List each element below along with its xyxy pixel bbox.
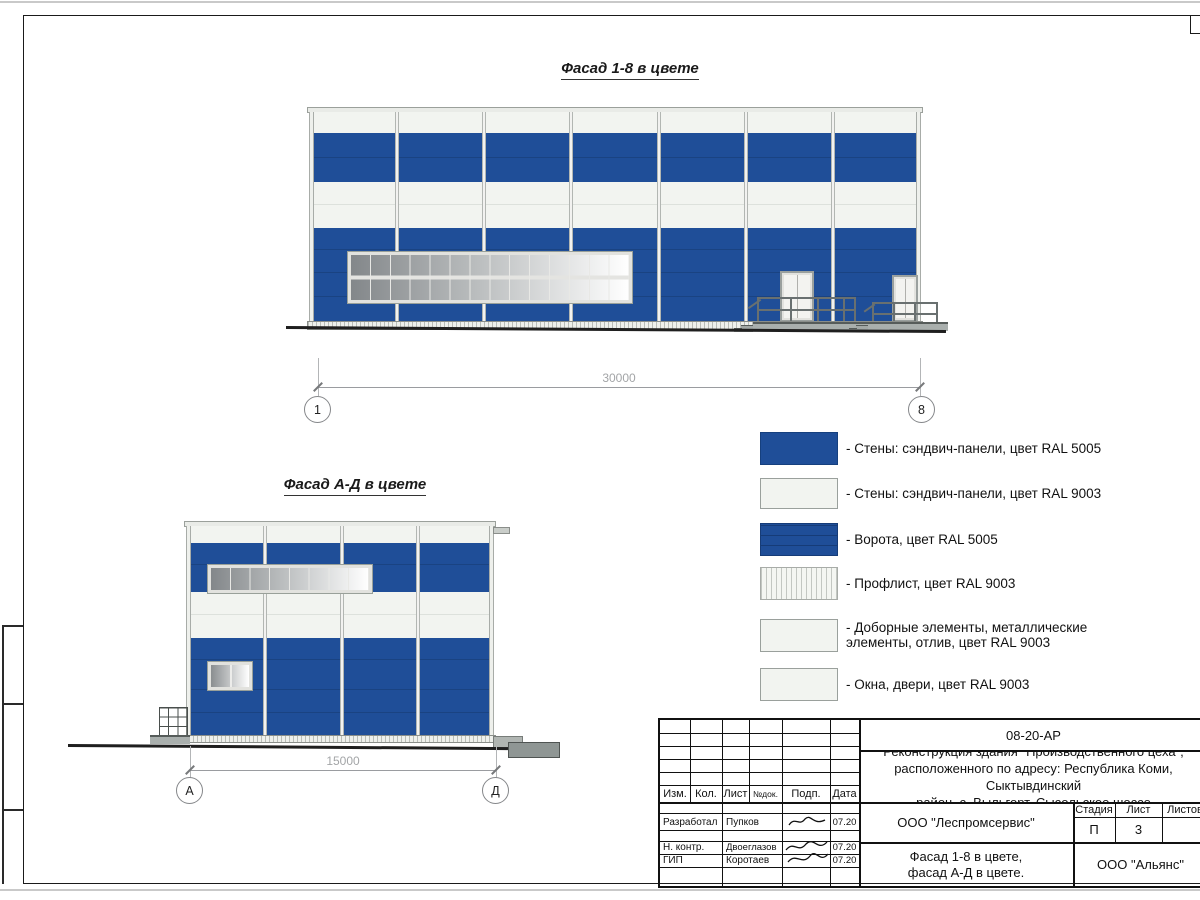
railing-post bbox=[843, 297, 845, 322]
axis-label: А bbox=[185, 784, 193, 798]
title-block-line bbox=[660, 830, 859, 831]
left-platform bbox=[150, 735, 190, 744]
name-pupkov: Пупков bbox=[723, 814, 782, 830]
railing bbox=[872, 313, 938, 315]
corner-trim bbox=[186, 526, 191, 735]
railing-post bbox=[893, 302, 895, 322]
title-block-line bbox=[660, 733, 859, 734]
panel-band-white bbox=[310, 182, 920, 205]
facade-a-d-title: Фасад А-Д в цвете bbox=[250, 476, 460, 493]
extension-line bbox=[920, 358, 921, 396]
gutter-outlet bbox=[493, 527, 510, 534]
org-client: ООО "Альянс" bbox=[1073, 843, 1200, 886]
margin-box-line bbox=[2, 703, 23, 705]
panel-band-white bbox=[310, 112, 920, 133]
legend-swatch-wall-blue bbox=[760, 432, 838, 465]
axis-label: 8 bbox=[918, 403, 925, 417]
facade-a-d-drawing bbox=[187, 522, 493, 743]
col-izm: Изм. bbox=[660, 786, 690, 802]
stair-railing bbox=[159, 707, 188, 736]
corner-trim bbox=[309, 112, 314, 321]
project-description: Реконструкция здания "Производственного … bbox=[859, 751, 1200, 802]
facade-mullion bbox=[263, 526, 267, 735]
legend-swatch-profiled-sheet bbox=[760, 567, 838, 600]
legend-swatch-wall-white bbox=[760, 478, 838, 509]
corner-stamp-box bbox=[1190, 15, 1200, 34]
col-data: Дата bbox=[830, 786, 859, 802]
extension-line bbox=[190, 746, 191, 778]
panel-band-blue bbox=[310, 158, 920, 182]
role-gip: ГИП bbox=[660, 854, 722, 867]
facade-mullion bbox=[340, 526, 344, 735]
role-razrabotal: Разработал bbox=[660, 814, 722, 830]
extension-line bbox=[318, 358, 319, 396]
dimension-value: 15000 bbox=[243, 754, 443, 768]
dimension-line bbox=[318, 387, 920, 388]
legend-swatch-windows-doors bbox=[760, 668, 838, 701]
facade-mullion bbox=[831, 112, 835, 321]
corner-trim bbox=[489, 526, 494, 735]
document-code: 08-20-АР bbox=[859, 720, 1200, 750]
date-razrabotal: 07.20 bbox=[830, 814, 859, 830]
drawing-sheet: Фасад 1-8 в цвете bbox=[0, 0, 1200, 900]
role-nkontr: Н. контр. bbox=[660, 841, 722, 854]
railing bbox=[872, 302, 938, 304]
sheet-bottom-edge bbox=[0, 889, 1200, 891]
facade-1-8-title: Фасад 1-8 в цвете bbox=[520, 60, 740, 77]
axis-bubble-1: 1 bbox=[304, 396, 331, 423]
facade-mullion bbox=[416, 526, 420, 735]
margin-box-line bbox=[2, 809, 23, 811]
railing-post bbox=[936, 302, 938, 322]
legend-label: - Профлист, цвет RAL 9003 bbox=[846, 567, 1186, 600]
legend-label: - Доборные элементы, металлические элеме… bbox=[846, 612, 1136, 658]
org-developer: ООО "Леспромсервис" bbox=[859, 803, 1073, 842]
facade-1-8-drawing bbox=[310, 108, 920, 330]
railing-post bbox=[817, 297, 819, 322]
facade-mullion bbox=[744, 112, 748, 321]
sheets-label: Листов bbox=[1162, 802, 1200, 817]
stage-value: П bbox=[1073, 817, 1115, 842]
legend-label: - Стены: сэндвич-панели, цвет RAL 5005 bbox=[846, 432, 1186, 465]
dimension-line bbox=[190, 770, 496, 771]
stage-label: Стадия bbox=[1073, 802, 1115, 817]
col-kol: Кол. bbox=[690, 786, 722, 802]
title-block-line bbox=[660, 759, 859, 760]
railing bbox=[757, 297, 856, 299]
col-podp: Подп. bbox=[782, 786, 830, 802]
railing bbox=[757, 309, 856, 311]
signature-dvoeglazov-korotaev bbox=[782, 838, 830, 868]
ribbon-window bbox=[208, 565, 372, 593]
title-block-line bbox=[660, 772, 859, 773]
margin-box-line bbox=[2, 625, 4, 884]
axis-label: 1 bbox=[314, 403, 321, 417]
ribbon-window bbox=[348, 252, 632, 303]
axis-bubble-a: А bbox=[176, 777, 203, 804]
extension-line bbox=[496, 746, 497, 778]
name-korotaev: Коротаев bbox=[723, 854, 782, 867]
legend-swatch-trim-elements bbox=[760, 619, 838, 652]
sheet-value: 3 bbox=[1115, 817, 1162, 842]
railing-post bbox=[854, 297, 856, 322]
facade-mullion bbox=[657, 112, 661, 321]
dimension-value: 30000 bbox=[519, 371, 719, 385]
title-block-line bbox=[660, 746, 859, 747]
sheet-label: Лист bbox=[1115, 802, 1162, 817]
legend-swatch-gate-blue bbox=[760, 523, 838, 556]
col-list: Лист bbox=[722, 786, 749, 802]
railing-post bbox=[914, 302, 916, 322]
panel-band-blue bbox=[310, 228, 920, 250]
date-gip: 07.20 bbox=[830, 854, 859, 867]
right-ground-block bbox=[508, 742, 560, 758]
panel-band-white bbox=[310, 205, 920, 228]
panel-band-blue bbox=[310, 133, 920, 158]
window-glazing bbox=[211, 665, 249, 687]
window-glazing bbox=[351, 255, 629, 300]
base-profiled-sheet bbox=[184, 735, 496, 743]
axis-label: Д bbox=[491, 784, 499, 798]
col-ndok: №док. bbox=[749, 786, 782, 802]
signature-pupkov bbox=[785, 814, 829, 830]
legend-label: - Окна, двери, цвет RAL 9003 bbox=[846, 668, 1186, 701]
legend-label: - Ворота, цвет RAL 5005 bbox=[846, 523, 1186, 556]
railing-post bbox=[790, 297, 792, 322]
title-block: Изм. Кол. Лист №док. Подп. Дата Разработ… bbox=[658, 718, 1200, 888]
small-window bbox=[208, 662, 252, 690]
title-block-line bbox=[660, 802, 859, 804]
sheet-top-edge bbox=[0, 1, 1200, 3]
axis-bubble-8: 8 bbox=[908, 396, 935, 423]
legend-label: - Стены: сэндвич-панели, цвет RAL 9003 bbox=[846, 478, 1186, 509]
date-nkontr: 07.20 bbox=[830, 841, 859, 854]
axis-bubble-d: Д bbox=[482, 777, 509, 804]
name-dvoeglazov: Двоеглазов bbox=[723, 841, 782, 854]
margin-box-line bbox=[2, 625, 23, 627]
drawing-title-cell: Фасад 1-8 в цвете, фасад А-Д в цвете. bbox=[859, 843, 1073, 886]
window-glazing bbox=[211, 568, 369, 590]
